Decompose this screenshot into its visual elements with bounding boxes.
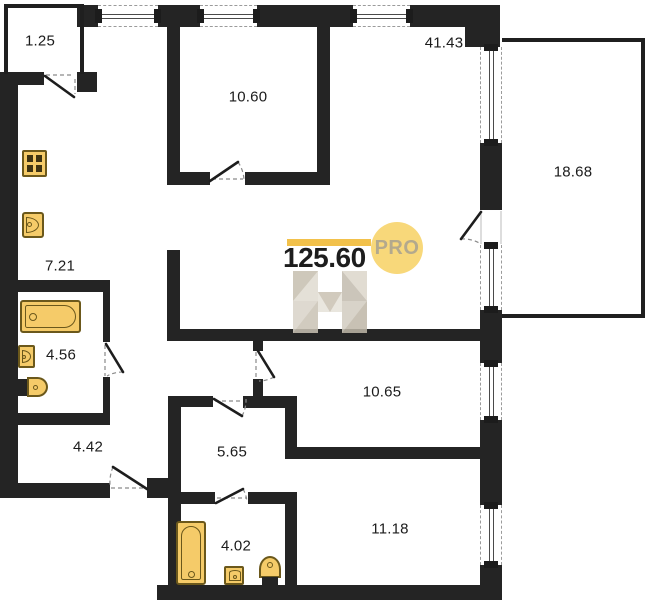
label-bathroom-1: 4.56	[46, 347, 76, 364]
label-room-bottom: 11.18	[371, 521, 408, 538]
entry-door-leaf	[113, 467, 147, 489]
h-logo-watermark	[293, 271, 367, 333]
terrace-door-arc	[461, 239, 481, 244]
terrace-door-leaf	[461, 212, 481, 239]
pro-badge-label: PRO	[375, 237, 420, 260]
label-entry-hall: 4.42	[73, 439, 103, 456]
balcony-door-leaf	[45, 76, 74, 97]
label-inner-hall: 5.65	[217, 444, 247, 461]
room-mid-door-leaf	[258, 351, 274, 377]
room-mid-door-arc	[256, 352, 274, 381]
label-bathroom-2: 4.02	[221, 538, 251, 555]
bathroom-1-door-arc	[105, 345, 123, 376]
label-living-room: 41.43	[425, 35, 464, 52]
label-balcony: 1.25	[25, 33, 55, 50]
floor-plan: 1.25 10.60 41.43 18.68 7.21 4.56 4.42 5.…	[0, 0, 647, 600]
room-top-door-leaf	[210, 162, 238, 181]
total-area: 125.60	[283, 243, 366, 274]
bathroom-1-door-leaf	[106, 344, 123, 372]
label-room-top: 10.60	[229, 89, 268, 106]
terrace-door-jamb	[481, 211, 501, 244]
label-kitchen: 7.21	[45, 258, 75, 275]
pro-badge: PRO	[371, 222, 423, 274]
bathroom-2-door-leaf	[216, 489, 243, 503]
label-room-mid: 10.65	[363, 384, 402, 401]
label-terrace: 18.68	[554, 164, 593, 181]
balcony-door-arc	[46, 75, 75, 94]
